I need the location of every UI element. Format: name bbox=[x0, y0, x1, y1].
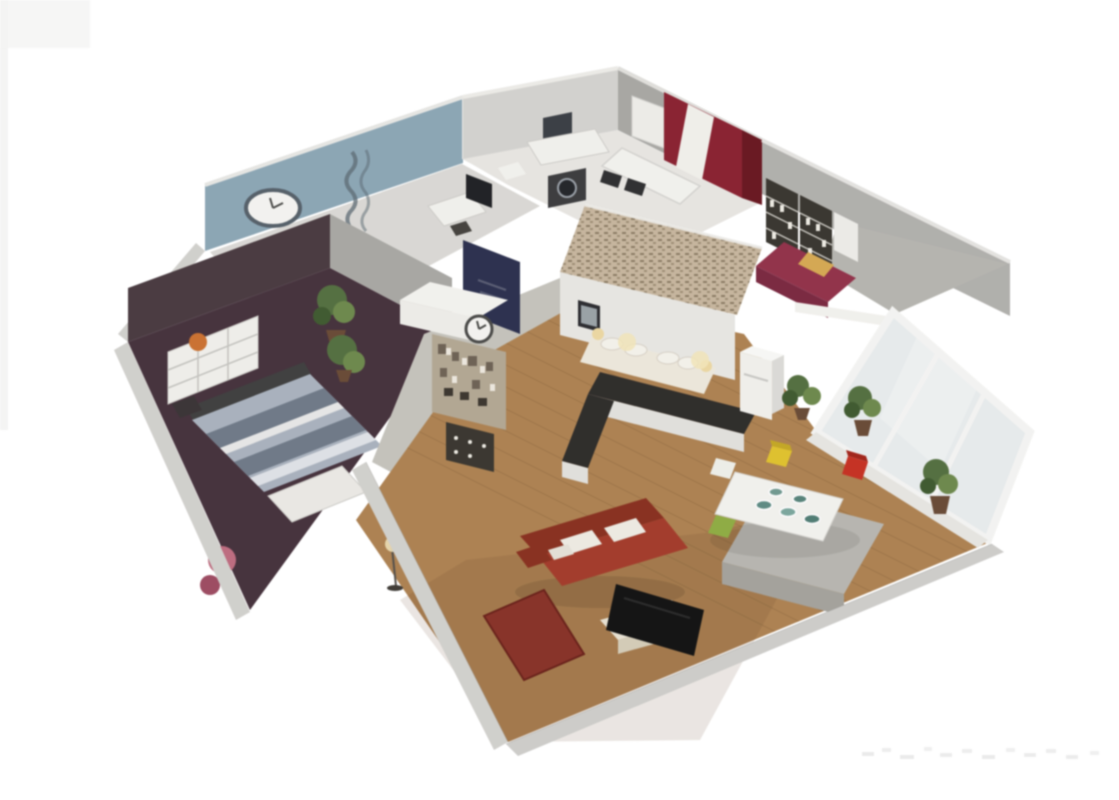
pendant-light-glow bbox=[618, 333, 636, 351]
wall-trim bbox=[795, 302, 893, 327]
page-edge-tint bbox=[0, 0, 8, 430]
pink-cushion bbox=[200, 575, 220, 595]
pendant-light-glow bbox=[691, 351, 709, 369]
round-clock bbox=[466, 316, 492, 342]
apartment-3d-scene bbox=[0, 0, 1119, 800]
oval-wall-clock bbox=[246, 190, 300, 226]
orange-decor-ball bbox=[189, 333, 207, 351]
page-corner-tint bbox=[0, 0, 90, 48]
bedside-lamp bbox=[592, 328, 604, 340]
watermark-remnant bbox=[862, 747, 1099, 759]
floorplan-render-canvas bbox=[0, 0, 1119, 800]
refrigerator bbox=[740, 346, 784, 420]
